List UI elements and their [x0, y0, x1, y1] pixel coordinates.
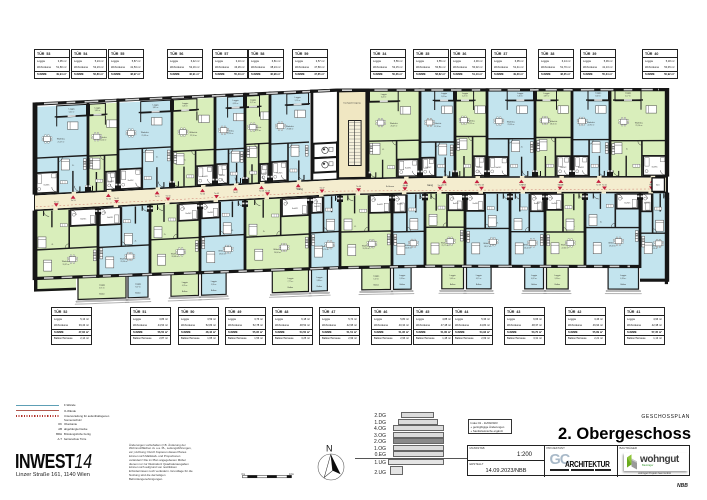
svg-text:Loggia: Loggia [211, 281, 218, 283]
svg-text:Bad/WC: Bad/WC [314, 206, 321, 208]
svg-text:3,20 m²: 3,20 m² [555, 277, 561, 280]
svg-text:Tür 58: Tür 58 [259, 190, 264, 193]
svg-text:Bad/WC: Bad/WC [453, 203, 460, 205]
svg-text:Loggia: Loggia [182, 103, 189, 105]
svg-text:0m: 0m [242, 472, 246, 476]
svg-text:24,84 m²: 24,84 m² [274, 251, 281, 254]
svg-text:Balkon: Balkon [99, 294, 105, 296]
svg-text:28,68 m²: 28,68 m² [171, 255, 178, 258]
svg-text:Loggia: Loggia [450, 275, 457, 277]
svg-text:6,53 m²: 6,53 m² [233, 102, 239, 105]
svg-text:Bad/WC: Bad/WC [128, 180, 135, 182]
svg-text:Loggia: Loggia [595, 93, 602, 95]
svg-text:Bad/WC: Bad/WC [219, 175, 226, 177]
svg-text:4,29 m²: 4,29 m² [182, 284, 188, 287]
svg-text:24,14 m²: 24,14 m² [99, 139, 106, 142]
svg-text:Tür 48: Tür 48 [265, 189, 270, 192]
svg-text:Bad/WC: Bad/WC [377, 204, 384, 206]
svg-text:Loggia: Loggia [316, 277, 323, 279]
svg-text:3,86 m²: 3,86 m² [317, 279, 323, 282]
svg-text:Bad/WC: Bad/WC [477, 167, 484, 169]
svg-text:4,17 m²: 4,17 m² [476, 277, 482, 280]
svg-text:Tür 50: Tür 50 [166, 195, 171, 198]
svg-text:Balkon: Balkon [400, 284, 406, 286]
svg-text:21,93 m²: 21,93 m² [141, 134, 148, 137]
svg-text:7,77 m²: 7,77 m² [288, 280, 294, 283]
svg-text:22,29 m²: 22,29 m² [226, 132, 233, 135]
svg-text:Wohnkü.: Wohnkü. [390, 123, 399, 125]
svg-text:Loggia: Loggia [99, 285, 106, 287]
svg-text:Wohnkü.: Wohnkü. [549, 121, 558, 123]
svg-text:Tür 35: Tür 35 [442, 184, 447, 187]
svg-text:10m: 10m [289, 472, 294, 476]
svg-text:Bad/WC: Bad/WC [80, 219, 87, 221]
svg-text:Wohnkü.: Wohnkü. [635, 122, 644, 124]
svg-text:5,30 m²: 5,30 m² [211, 283, 217, 286]
svg-text:Bad/WC: Bad/WC [425, 167, 432, 169]
svg-text:21,22 m²: 21,22 m² [467, 122, 474, 125]
svg-text:18,97 m²: 18,97 m² [484, 245, 491, 248]
svg-text:29,68 m²: 29,68 m² [286, 128, 293, 131]
svg-text:Bad/WC: Bad/WC [277, 172, 284, 174]
svg-text:26,47 m²: 26,47 m² [390, 125, 397, 128]
svg-text:Loggia: Loggia [94, 107, 101, 109]
svg-text:6,18 m²: 6,18 m² [620, 277, 626, 280]
svg-text:Balkon: Balkon [555, 284, 561, 286]
svg-text:Tür 43: Tür 43 [521, 184, 526, 187]
svg-text:5,41 m²: 5,41 m² [69, 111, 75, 114]
svg-text:Balkon: Balkon [135, 292, 141, 294]
svg-text:5,30 m²: 5,30 m² [517, 95, 523, 98]
svg-text:Wohnkü.: Wohnkü. [286, 126, 295, 128]
svg-text:Bad/WC: Bad/WC [292, 208, 299, 210]
svg-text:Balkon: Balkon [621, 284, 627, 286]
svg-text:Loggia: Loggia [620, 275, 627, 277]
svg-text:Dachgartenzugang: Dachgartenzugang [344, 102, 361, 105]
svg-text:6,20 m²: 6,20 m² [381, 96, 387, 99]
svg-text:Tür 53: Tür 53 [71, 199, 76, 202]
svg-text:Tür 52: Tür 52 [54, 200, 59, 203]
svg-text:3,24 m²: 3,24 m² [399, 277, 405, 280]
svg-text:Wohnkü.: Wohnkü. [189, 132, 198, 134]
svg-text:Loggia: Loggia [554, 275, 561, 277]
svg-text:21,18 m²: 21,18 m² [434, 125, 441, 128]
svg-text:Loggia: Loggia [476, 275, 483, 277]
svg-text:19,29 m²: 19,29 m² [362, 247, 369, 250]
svg-text:Gang: Gang [427, 184, 434, 187]
svg-text:Tür 42: Tür 42 [558, 184, 563, 187]
svg-text:Tür 54: Tür 54 [106, 197, 111, 200]
svg-text:Balkon: Balkon [373, 285, 379, 287]
svg-text:3,21 m²: 3,21 m² [250, 101, 256, 104]
svg-text:5,17 m²: 5,17 m² [625, 95, 631, 98]
svg-text:Bad/WC: Bad/WC [186, 213, 193, 215]
svg-text:28,31 m²: 28,31 m² [550, 123, 557, 126]
svg-text:5,20 m²: 5,20 m² [462, 95, 468, 98]
svg-text:Tür 56: Tür 56 [200, 193, 205, 196]
svg-text:Bad/WC: Bad/WC [495, 167, 502, 169]
svg-text:Loggia: Loggia [531, 275, 538, 277]
svg-text:Loggia: Loggia [381, 94, 388, 96]
svg-text:Loggia: Loggia [625, 93, 632, 95]
svg-text:Tür 47: Tür 47 [320, 187, 325, 190]
svg-text:Abst: Abst [656, 184, 660, 187]
svg-text:Tür 43: Tür 43 [479, 184, 484, 187]
svg-text:5,91 m²: 5,91 m² [99, 287, 105, 290]
svg-text:Loggia: Loggia [69, 109, 76, 111]
svg-text:Wohnkü.: Wohnkü. [141, 132, 150, 134]
svg-text:22,65 m²: 22,65 m² [561, 247, 568, 250]
svg-text:Loggia: Loggia [233, 100, 240, 102]
svg-text:5,83 m²: 5,83 m² [441, 95, 447, 98]
svg-text:Tür 39: Tür 39 [596, 183, 601, 186]
svg-text:Bad/WC: Bad/WC [208, 212, 215, 214]
svg-text:5,15 m²: 5,15 m² [295, 99, 301, 102]
svg-text:29,43 m²: 29,43 m² [609, 244, 616, 247]
svg-text:Loggia: Loggia [399, 275, 406, 277]
svg-text:21,27 m²: 21,27 m² [57, 141, 64, 144]
svg-text:Tür 55: Tür 55 [155, 195, 160, 198]
svg-text:5,49 m²: 5,49 m² [450, 277, 456, 280]
svg-text:3,81 m²: 3,81 m² [153, 106, 159, 109]
svg-text:Loggia: Loggia [153, 104, 160, 106]
svg-text:Bad/WC: Bad/WC [560, 167, 567, 169]
svg-text:Loggia: Loggia [543, 93, 550, 95]
svg-text:Bad/WC: Bad/WC [108, 181, 115, 183]
svg-text:Tür 57: Tür 57 [233, 191, 238, 194]
svg-text:22,10 m²: 22,10 m² [190, 134, 197, 137]
svg-text:Bad/WC: Bad/WC [202, 176, 209, 178]
svg-text:Bad/WC: Bad/WC [107, 217, 114, 219]
svg-text:Loggia: Loggia [182, 282, 189, 284]
svg-text:Balkon: Balkon [531, 284, 537, 286]
svg-text:Loggia: Loggia [441, 93, 448, 95]
svg-text:Loggia: Loggia [250, 99, 257, 101]
svg-text:Bad/WC: Bad/WC [578, 167, 585, 169]
svg-text:Wohnkü.: Wohnkü. [587, 122, 596, 124]
svg-text:19,37 m²: 19,37 m² [62, 263, 69, 266]
svg-text:6,85 m²: 6,85 m² [182, 105, 188, 108]
svg-text:Loggia: Loggia [517, 93, 524, 95]
svg-text:25,77 m²: 25,77 m² [441, 244, 448, 247]
svg-text:Bad/WC: Bad/WC [534, 203, 541, 205]
svg-text:29,81 m²: 29,81 m² [219, 252, 226, 255]
svg-text:Bad/WC: Bad/WC [405, 168, 412, 170]
svg-text:Balkon: Balkon [476, 284, 482, 286]
svg-text:Balkon: Balkon [182, 291, 188, 293]
svg-text:Loggia: Loggia [295, 97, 302, 99]
svg-text:29,50 m²: 29,50 m² [120, 260, 127, 263]
svg-text:Bad/WC: Bad/WC [552, 203, 559, 205]
svg-text:Schleuse: Schleuse [386, 186, 395, 188]
svg-text:Tür 46: Tür 46 [356, 185, 361, 188]
svg-text:5,72 m²: 5,72 m² [373, 278, 379, 281]
svg-text:Bad/WC: Bad/WC [644, 203, 651, 205]
svg-text:4,82 m²: 4,82 m² [531, 277, 537, 280]
svg-text:23,55 m²: 23,55 m² [507, 123, 514, 126]
svg-text:Tür 44: Tür 44 [438, 184, 443, 187]
svg-text:Balkon: Balkon [211, 290, 217, 292]
svg-text:3,87 m²: 3,87 m² [544, 95, 550, 98]
svg-text:Bad/WC: Bad/WC [624, 203, 631, 205]
svg-text:Bad/WC: Bad/WC [261, 173, 268, 175]
svg-text:Tür 49: Tür 49 [214, 192, 219, 195]
svg-text:Bad/WC: Bad/WC [397, 204, 404, 206]
svg-text:Balkon: Balkon [288, 287, 294, 289]
svg-text:Loggia: Loggia [287, 278, 294, 280]
svg-text:N: N [326, 444, 333, 454]
svg-text:Balkon: Balkon [450, 284, 456, 286]
svg-text:7,87 m²: 7,87 m² [135, 285, 141, 288]
svg-text:Bad/WC: Bad/WC [44, 185, 51, 187]
svg-text:Loggia: Loggia [373, 276, 380, 278]
svg-text:Balkon: Balkon [317, 286, 323, 288]
svg-text:3,85 m²: 3,85 m² [95, 109, 101, 112]
svg-text:Loggia: Loggia [462, 93, 469, 95]
svg-text:Wohnkü.: Wohnkü. [57, 139, 66, 141]
svg-text:21,14 m²: 21,14 m² [635, 124, 642, 127]
svg-text:Tür 59: Tür 59 [296, 188, 301, 191]
svg-text:Tür 45: Tür 45 [402, 184, 407, 187]
svg-text:Bad/WC: Bad/WC [652, 167, 659, 169]
svg-text:6,58 m²: 6,58 m² [595, 95, 601, 98]
svg-text:Tür 51: Tür 51 [114, 197, 119, 200]
svg-text:22,91 m²: 22,91 m² [587, 124, 594, 127]
svg-text:Tür 41: Tür 41 [602, 184, 607, 187]
svg-text:Loggia: Loggia [135, 283, 142, 285]
svg-text:Wohnkü.: Wohnkü. [507, 121, 516, 123]
svg-text:Bad/WC: Bad/WC [473, 203, 480, 205]
